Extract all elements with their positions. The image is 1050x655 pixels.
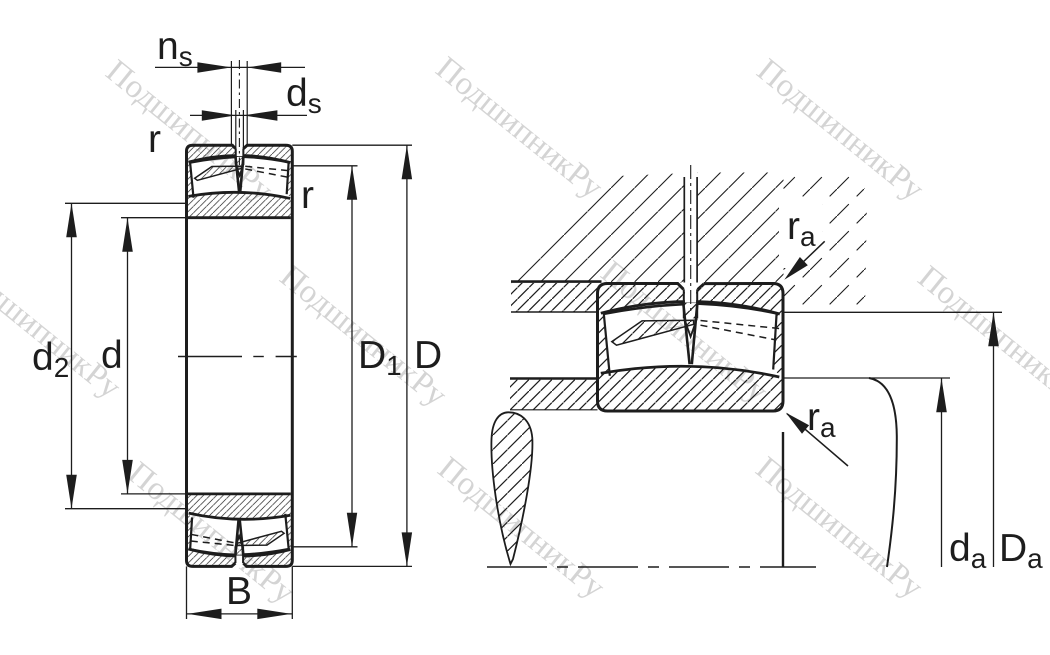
svg-text:r: r <box>148 118 161 161</box>
svg-text:r: r <box>301 174 314 217</box>
svg-text:B: B <box>226 570 252 613</box>
svg-text:d: d <box>101 334 123 377</box>
svg-text:D: D <box>414 334 442 377</box>
